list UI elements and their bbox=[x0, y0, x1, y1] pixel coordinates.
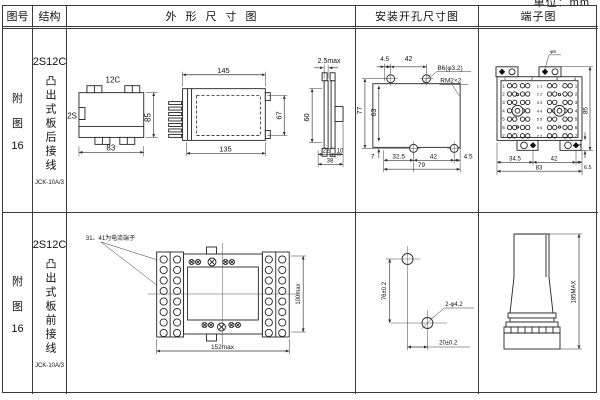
front-view: 85 83 12C 2S bbox=[67, 76, 157, 157]
figure-char: 附 bbox=[12, 90, 23, 106]
figure-number: 16 bbox=[11, 140, 23, 152]
dim-label: 34.5 bbox=[509, 156, 521, 162]
model-label: 2S12C bbox=[33, 239, 66, 251]
dim-label: 83 bbox=[106, 143, 115, 152]
figure-number: 16 bbox=[11, 323, 23, 335]
column-header-install: 安装开孔尺寸图 bbox=[356, 6, 479, 29]
pair-label: 4 4 bbox=[537, 108, 543, 113]
install-drawing-front-cell: 2-φ4.2 76±0.2 20±0.2 bbox=[356, 213, 479, 394]
pair-label: 2 2 bbox=[537, 92, 543, 97]
dim-label: 135 bbox=[219, 144, 231, 153]
current-terminal-note: 31、41为电流端子 bbox=[86, 234, 135, 242]
figure-char: 图 bbox=[12, 115, 23, 131]
dim-label: 67 bbox=[274, 111, 283, 119]
screw-callout: φ6 bbox=[550, 49, 556, 55]
thread-callout: RM2×2 bbox=[440, 78, 461, 85]
dim-label: 32.5 bbox=[392, 153, 405, 160]
dim-label: 152max bbox=[211, 344, 235, 351]
dim-label: 83 bbox=[536, 166, 543, 172]
dim-label: 20±0.2 bbox=[439, 340, 458, 346]
panel-profile-view: 2.5max 60 22 10 38 bbox=[302, 58, 344, 167]
structure-cell: 2S12C 凸出式板前接线 JCK-10A/3 bbox=[33, 213, 67, 394]
dim-label: 38 bbox=[327, 158, 334, 164]
dim-label: 77 bbox=[357, 107, 364, 115]
figure-number-cell: 附 图 16 bbox=[3, 213, 33, 394]
dim-label: 4.5 bbox=[464, 153, 473, 160]
product-code: JCK-10A/3 bbox=[35, 180, 64, 186]
dim-label: 4 bbox=[578, 144, 584, 147]
pair-label: 3 3 bbox=[537, 100, 543, 105]
dim-label: 63 bbox=[371, 109, 378, 117]
model-label: 2S12C bbox=[33, 56, 66, 68]
dim-label: 42 bbox=[405, 56, 413, 63]
terminal-drawing-rear: 1 2 3 4 5 6 7 1 2 3 4 5 6 7 1 1 2 2 3 3 bbox=[479, 29, 598, 212]
column-header-figure: 图号 bbox=[3, 6, 33, 29]
dim-label: 60 bbox=[302, 113, 311, 121]
install-drawing-front: 2-φ4.2 76±0.2 20±0.2 bbox=[356, 213, 478, 394]
dim-label: 42 bbox=[430, 153, 438, 160]
hole-callout: B6(φ3.2) bbox=[437, 65, 462, 72]
outline-drawing-rear-cell: 85 83 12C 2S bbox=[67, 29, 356, 213]
figure-number-cell: 附 图 16 bbox=[3, 29, 33, 213]
structure-desc: 凸出式板后接线 bbox=[44, 75, 55, 173]
structure-desc: 凸出式板前接线 bbox=[44, 258, 55, 356]
front-wiring-view bbox=[148, 243, 298, 347]
pair-label: 6 6 bbox=[537, 125, 543, 130]
column-header-structure: 结构 bbox=[33, 6, 67, 29]
dimensions: 2-φ4.2 76±0.2 20±0.2 bbox=[382, 259, 474, 350]
view-label: 2S bbox=[67, 112, 77, 121]
figure-char: 图 bbox=[12, 298, 23, 314]
drawing-sheet: 单位：mm 图号 结构 外形尺寸图 安装开孔尺寸图 端子图 附 图 16 2S1… bbox=[0, 0, 600, 400]
outline-drawing-front-cell: 31、41为电流端子 bbox=[67, 213, 356, 394]
outline-drawing-front: 31、41为电流端子 bbox=[67, 213, 355, 394]
note: 31、41为电流端子 bbox=[86, 234, 158, 285]
figure-char: 附 bbox=[12, 273, 23, 289]
dim-label: 10 bbox=[337, 148, 344, 154]
dim-label: 85 bbox=[582, 107, 589, 115]
product-code: JCK-10A/3 bbox=[35, 363, 64, 369]
column-header-terminal: 端子图 bbox=[479, 6, 598, 29]
holes bbox=[391, 246, 448, 336]
dim-label: 22 bbox=[323, 148, 330, 154]
terminal-drawing-front: 185MAX bbox=[479, 213, 598, 394]
dim-label: 6.5 bbox=[584, 165, 592, 171]
dim-label: 7 bbox=[371, 153, 375, 160]
col-number: 2 bbox=[531, 76, 533, 81]
dim-label: 42 bbox=[551, 156, 558, 162]
pair-label: 1 1 bbox=[537, 83, 543, 88]
terminal-drawing-rear-cell: 1 2 3 4 5 6 7 1 2 3 4 5 6 7 1 1 2 2 3 3 bbox=[479, 29, 598, 213]
terminal-drawing-front-cell: 185MAX bbox=[479, 213, 598, 394]
dim-label: 185MAX bbox=[572, 280, 578, 303]
outline-drawing-rear: 85 83 12C 2S bbox=[67, 29, 355, 212]
pair-label: 5 5 bbox=[537, 117, 543, 122]
hole-callout: 2-φ4.2 bbox=[445, 302, 463, 308]
dim-label: 100max bbox=[296, 283, 302, 304]
side-view: 145 135 67 bbox=[169, 66, 288, 157]
dim-label: 4.5 bbox=[380, 56, 389, 63]
relay-silhouette bbox=[504, 234, 560, 349]
dim-label: 145 bbox=[217, 66, 229, 75]
column-header-outline: 外形尺寸图 bbox=[67, 6, 356, 29]
install-drawing-rear: 4.5 42 B6(φ3.2) RM2×2 77 63 7 bbox=[356, 29, 478, 212]
spec-table: 图号 结构 外形尺寸图 安装开孔尺寸图 端子图 附 图 16 2S12C 凸出式… bbox=[2, 5, 597, 393]
structure-cell: 2S12C 凸出式板后接线 JCK-10A/3 bbox=[33, 29, 67, 213]
dim-label: 85 bbox=[144, 113, 153, 122]
install-drawing-rear-cell: 4.5 42 B6(φ3.2) RM2×2 77 63 7 bbox=[356, 29, 479, 213]
view-label: 12C bbox=[106, 76, 121, 85]
dim-label: 76±0.2 bbox=[382, 281, 388, 300]
dim-label: 79 bbox=[418, 162, 426, 169]
dim-label: 2.5max bbox=[318, 58, 341, 65]
pair-label: 7 7 bbox=[537, 133, 543, 138]
